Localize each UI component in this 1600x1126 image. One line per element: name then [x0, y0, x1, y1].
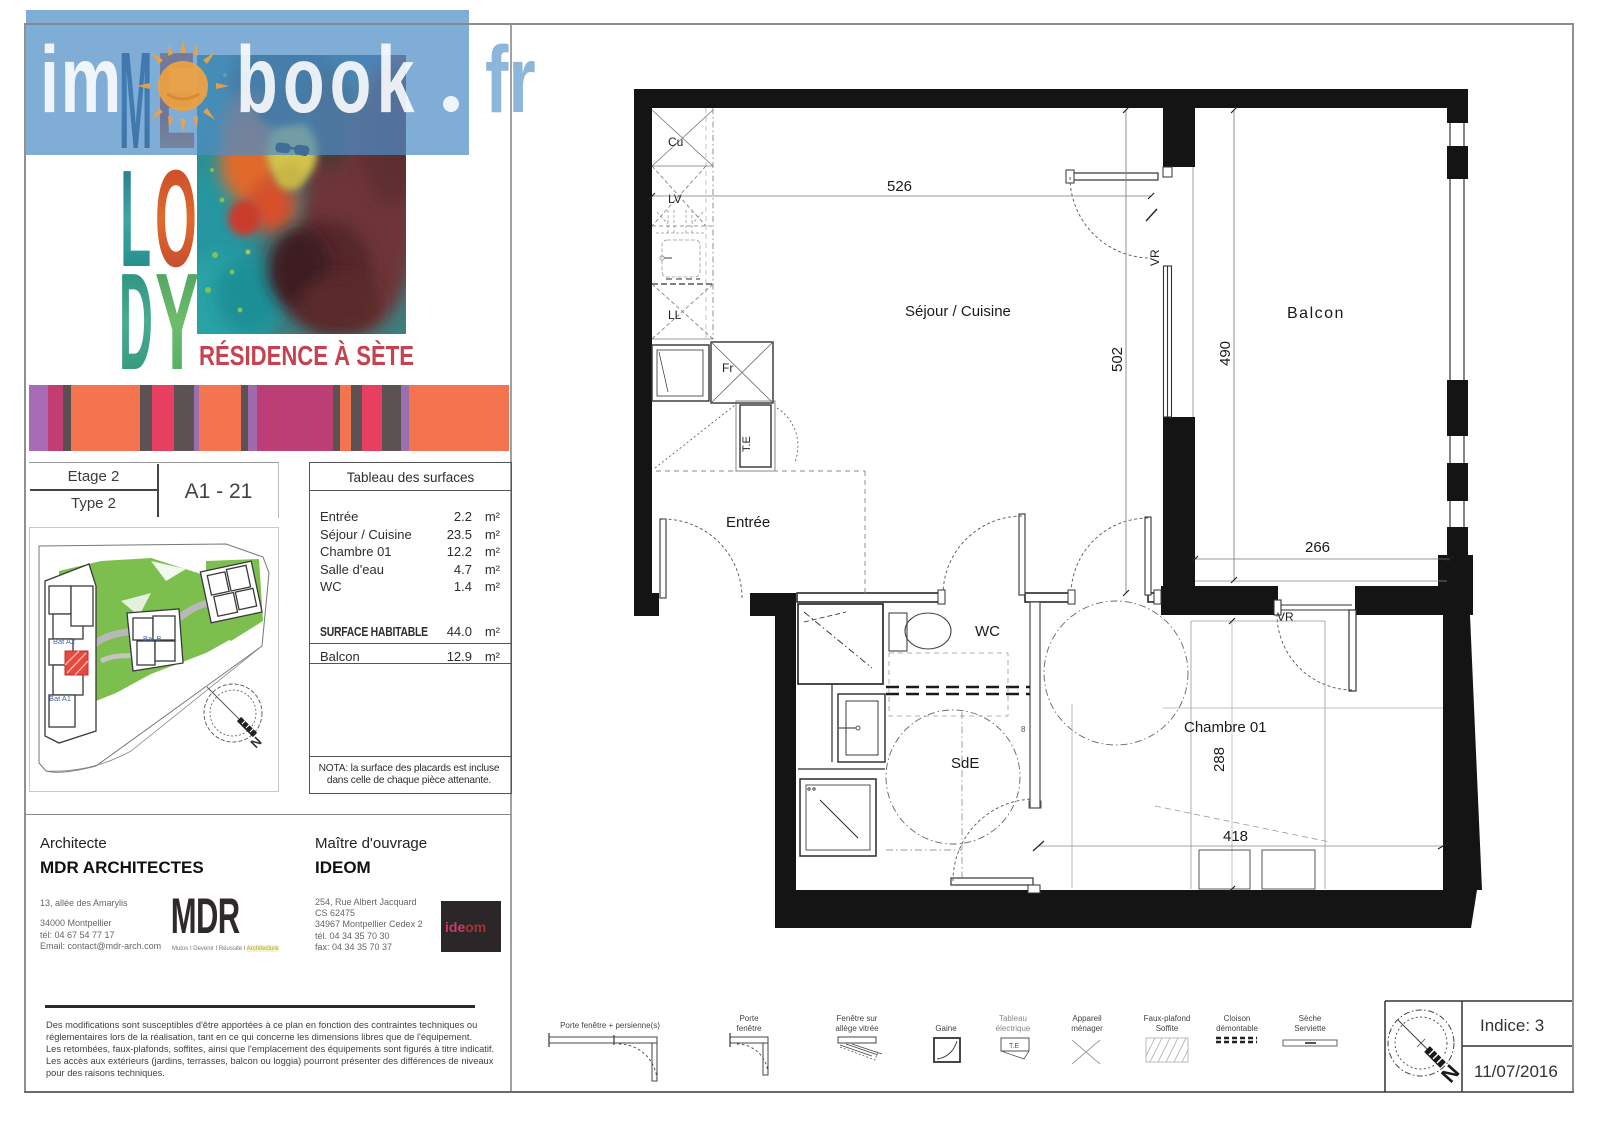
- svg-text:Sèche: Sèche: [1299, 1014, 1322, 1023]
- svg-text:Tableau: Tableau: [999, 1014, 1027, 1023]
- svg-text:Porte fenêtre + persienne(s): Porte fenêtre + persienne(s): [560, 1021, 660, 1030]
- svg-text:Faux-plafond: Faux-plafond: [1144, 1014, 1191, 1023]
- svg-text:démontable: démontable: [1216, 1024, 1258, 1033]
- svg-text:T.E: T.E: [1009, 1043, 1019, 1050]
- svg-text:Porte: Porte: [739, 1014, 759, 1023]
- svg-text:électrique: électrique: [996, 1024, 1031, 1033]
- svg-text:Appareil: Appareil: [1072, 1014, 1102, 1023]
- svg-text:Soffite: Soffite: [1156, 1024, 1179, 1033]
- svg-text:Serviette: Serviette: [1294, 1024, 1326, 1033]
- svg-text:Fenêtre sur: Fenêtre sur: [837, 1014, 878, 1023]
- svg-text:Gaine: Gaine: [935, 1024, 957, 1033]
- svg-text:Cloison: Cloison: [1224, 1014, 1251, 1023]
- svg-text:ménager: ménager: [1071, 1024, 1103, 1033]
- svg-text:fenêtre: fenêtre: [737, 1024, 762, 1033]
- svg-text:11/07/2016: 11/07/2016: [1474, 1062, 1558, 1081]
- svg-text:Indice: 3: Indice: 3: [1480, 1016, 1544, 1035]
- svg-text:allège vitrée: allège vitrée: [835, 1024, 879, 1033]
